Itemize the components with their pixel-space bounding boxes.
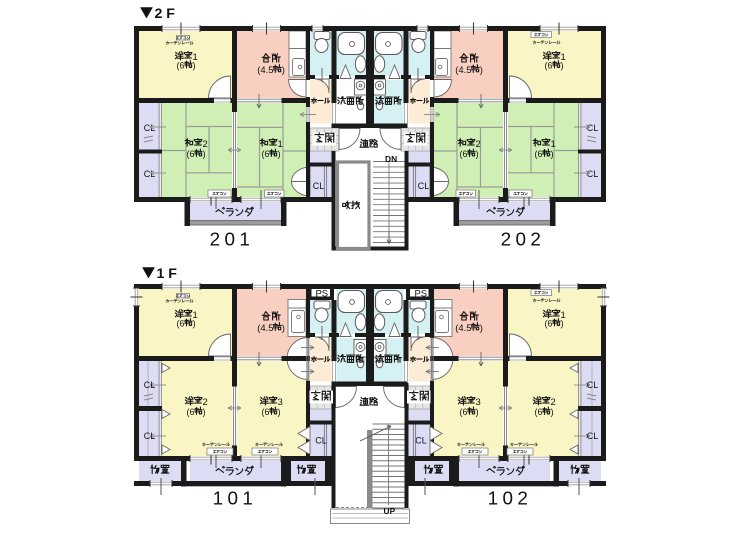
svg-text:CL: CL — [144, 380, 155, 390]
svg-text:): ) — [278, 149, 281, 159]
svg-text:): ) — [561, 319, 564, 329]
svg-text:): ) — [561, 61, 564, 71]
svg-text:): ) — [551, 149, 554, 159]
svg-text:(6: (6 — [262, 407, 270, 417]
svg-text:201: 201 — [210, 230, 255, 251]
svg-text:): ) — [203, 149, 206, 159]
svg-text:): ) — [193, 61, 196, 71]
svg-text:(4.5: (4.5 — [257, 323, 273, 334]
svg-text:(6: (6 — [262, 149, 270, 159]
svg-text:CL: CL — [418, 181, 429, 191]
svg-text:1 F: 1 F — [157, 266, 178, 282]
svg-text:CL: CL — [587, 380, 598, 390]
svg-text:): ) — [476, 149, 479, 159]
svg-text:UP: UP — [384, 506, 396, 516]
svg-text:PS: PS — [315, 289, 328, 300]
svg-text:): ) — [193, 319, 196, 329]
svg-text:CL: CL — [315, 436, 326, 446]
svg-text:): ) — [476, 407, 479, 417]
svg-text:(6: (6 — [460, 149, 468, 159]
svg-text:): ) — [278, 407, 281, 417]
svg-text:101: 101 — [213, 489, 258, 510]
svg-text:DN: DN — [385, 154, 397, 164]
svg-text:(6: (6 — [187, 149, 195, 159]
svg-text:(4.5: (4.5 — [455, 323, 471, 334]
svg-text:): ) — [480, 323, 483, 334]
svg-text:CL: CL — [587, 431, 598, 441]
svg-text:): ) — [203, 407, 206, 417]
svg-text:102: 102 — [488, 489, 533, 510]
svg-text:(4.5: (4.5 — [257, 65, 273, 76]
svg-text:(6: (6 — [545, 319, 553, 329]
svg-text:): ) — [480, 65, 483, 76]
svg-text:2 F: 2 F — [155, 6, 176, 22]
svg-text:CL: CL — [144, 123, 155, 133]
svg-text:(6: (6 — [177, 61, 185, 71]
svg-text:PS: PS — [414, 289, 427, 300]
svg-text:(4.5: (4.5 — [455, 65, 471, 76]
svg-text:CL: CL — [313, 181, 324, 191]
svg-text:(6: (6 — [535, 407, 543, 417]
svg-text:CL: CL — [415, 436, 426, 446]
svg-text:CL: CL — [144, 169, 155, 179]
svg-text:(6: (6 — [460, 407, 468, 417]
svg-text:): ) — [551, 407, 554, 417]
svg-text:202: 202 — [501, 230, 546, 251]
svg-text:(6: (6 — [177, 319, 185, 329]
svg-text:(6: (6 — [187, 407, 195, 417]
svg-text:CL: CL — [144, 431, 155, 441]
svg-text:): ) — [282, 65, 285, 76]
svg-text:(6: (6 — [535, 149, 543, 159]
svg-text:): ) — [282, 323, 285, 334]
svg-text:(6: (6 — [545, 61, 553, 71]
